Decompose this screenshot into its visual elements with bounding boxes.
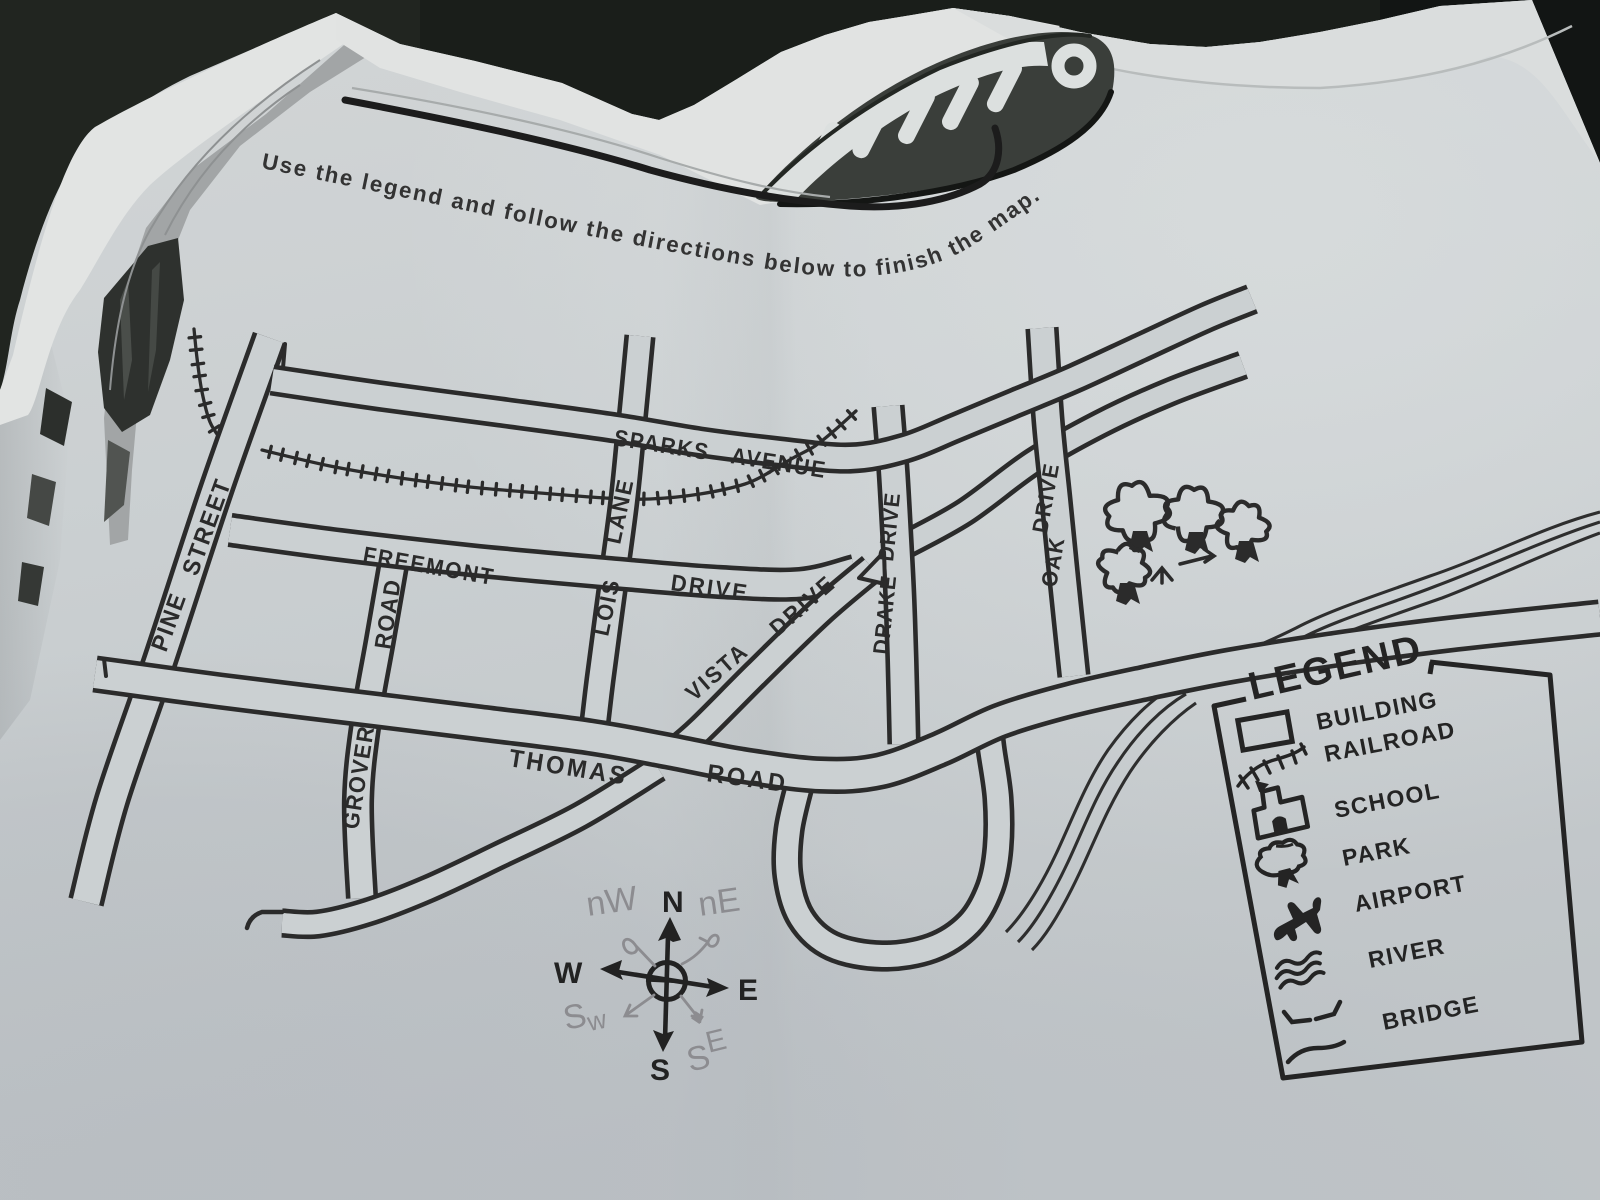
- svg-text:S: S: [650, 1054, 670, 1087]
- svg-text:W: W: [554, 957, 583, 990]
- svg-text:nE: nE: [696, 881, 742, 924]
- svg-text:E: E: [738, 974, 758, 1007]
- svg-text:nW: nW: [584, 879, 640, 924]
- svg-text:N: N: [662, 886, 684, 919]
